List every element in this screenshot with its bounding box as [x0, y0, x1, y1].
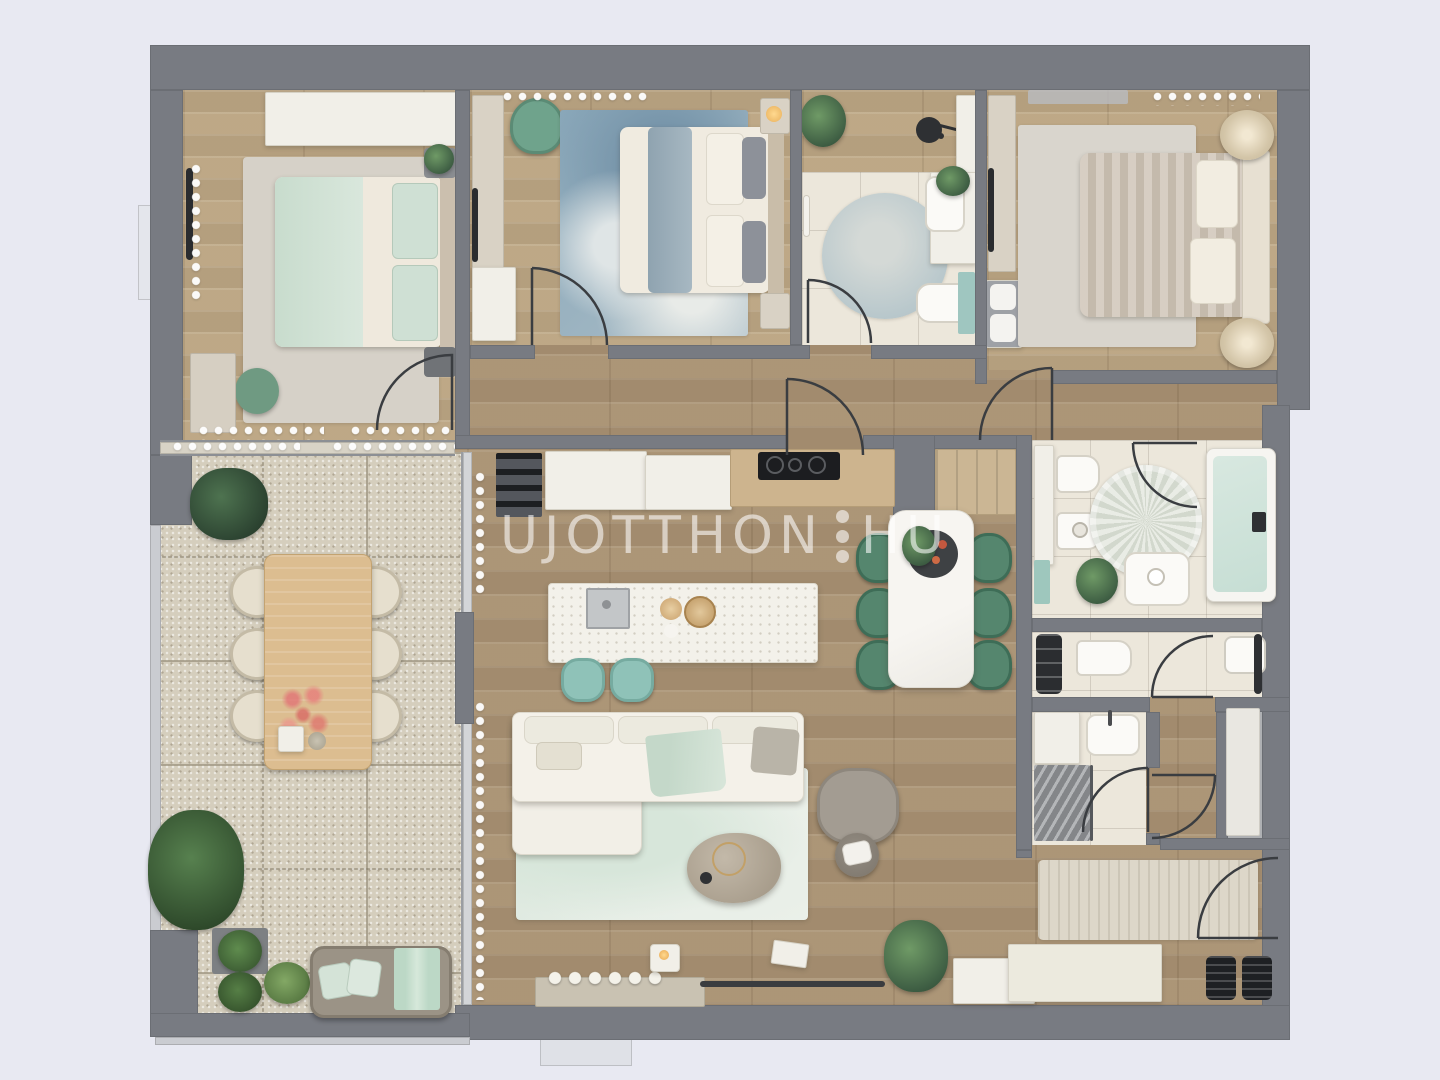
washbasin-2-drain — [1147, 568, 1165, 586]
side-table-star-bedroom-3-bottom — [1220, 318, 1274, 368]
cabinet-door-bedroom-3-a — [990, 284, 1016, 310]
nightstand-bedroom-1-bottom — [424, 347, 456, 377]
island-bowl-b — [684, 596, 716, 628]
terrace-vase — [278, 726, 304, 752]
daybed-pillow-b — [346, 958, 383, 998]
watermark-dot — [836, 510, 849, 523]
terrace-bowl — [308, 732, 326, 750]
watermark-text-main: UJOTTHON — [500, 506, 824, 566]
island-bowl-white — [664, 624, 678, 638]
entry-doormat-a — [1206, 956, 1236, 1000]
entry-doormat-b — [1242, 956, 1272, 1000]
bed-pillow-gray-bedroom-2-a — [742, 137, 766, 199]
console-decor-rocks — [545, 968, 665, 988]
curtain-terrace-top-b — [330, 440, 455, 455]
island-faucet — [602, 600, 611, 609]
wall-left-terrace-stub — [150, 455, 192, 525]
wardrobe-bedroom-1 — [265, 92, 457, 146]
tv-bedroom-2 — [472, 188, 478, 262]
plant-nightstand-bedroom-1 — [424, 144, 454, 174]
wall-hall-dining — [863, 435, 1032, 449]
wall-bathroom1-hall — [871, 345, 987, 359]
island-bowl-a — [660, 598, 682, 620]
sofa-pillow-chaise — [536, 742, 582, 770]
shower-glass — [1090, 765, 1093, 841]
bed-pillow-bedroom-3-a — [1196, 160, 1238, 228]
wall-bedroom2-hall-a — [470, 345, 535, 359]
watermark-dot — [836, 530, 849, 543]
toilet-bathroom-2 — [1056, 455, 1100, 493]
radiator-wc — [1254, 634, 1262, 694]
tv-bedroom-3 — [988, 168, 994, 252]
bar-stool-b — [610, 658, 654, 702]
sheer-bedroom-3-top — [1028, 90, 1128, 104]
cabinet-teal-bathroom-1 — [958, 272, 975, 334]
wall-right-upper — [1277, 90, 1310, 410]
watermark: UJOTTHON HU — [500, 506, 950, 566]
headboard-bedroom-1 — [440, 172, 456, 352]
curtain-bedroom-2-top — [500, 90, 650, 105]
curtain-terrace-top-a — [170, 440, 300, 455]
toilet-bathroom-1 — [916, 283, 964, 323]
coffee-table-tray — [712, 842, 746, 876]
curtain-bedroom-1-left — [188, 162, 205, 302]
terrace-pot-round-b — [264, 962, 310, 1004]
kitchen-counter-white — [545, 451, 647, 510]
terrace-planter-square-green — [218, 930, 262, 972]
towel-teal-bathroom-2 — [1034, 560, 1050, 604]
washbasin-shower-room — [1086, 714, 1140, 756]
wall-shower-right-a — [1146, 712, 1160, 768]
wall-kitchen-column — [893, 435, 935, 515]
plant-bathroom-1 — [800, 95, 846, 147]
daybed-throw-mint — [394, 948, 440, 1010]
terrace-pot-round-a — [218, 972, 262, 1012]
wall-bathroom2-bottom — [1032, 618, 1262, 632]
bar-stool-a — [561, 658, 605, 702]
sofa-back-cushion-a — [524, 716, 614, 744]
wall-wc-bottom-a — [1032, 697, 1150, 712]
curtain-bedroom-3-top — [1150, 90, 1260, 106]
shelf-black-wc — [1036, 634, 1062, 694]
counter-shower-room — [1034, 712, 1080, 764]
bed-blanket-mint-bedroom-1 — [275, 177, 363, 347]
lamp-glow-bedroom-2 — [766, 106, 782, 122]
wall-hall-kitchen — [455, 435, 787, 449]
wall-bedroom2-hall-b — [608, 345, 810, 359]
bathtub-faucet — [1252, 512, 1266, 532]
terrace-sill-bottom — [155, 1037, 470, 1045]
entry-runner-rug — [1038, 860, 1258, 940]
glass-living-terrace — [461, 452, 472, 1005]
sofa-blanket-gray — [750, 726, 800, 776]
wall-top — [150, 45, 1310, 90]
headboard-bedroom-3 — [1242, 150, 1270, 324]
curtain-living-left-b — [472, 700, 489, 1000]
bed-pillow-bedroom-3-b — [1190, 238, 1236, 304]
plant-living-console — [884, 920, 948, 992]
pouf-bedroom-1 — [235, 368, 279, 414]
bed-pillow-gray-bedroom-2-b — [742, 221, 766, 283]
cooktop-burner-1 — [766, 456, 784, 474]
bed-pillow-white-bedroom-2-a — [706, 133, 744, 205]
wall-innerhall-entry — [1160, 838, 1290, 850]
dresser-bedroom-1 — [190, 353, 236, 433]
wall-bedroom3-hall — [1052, 370, 1277, 384]
dresser-bedroom-2 — [472, 267, 516, 341]
toilet-wc — [1076, 640, 1132, 676]
plant-vanity-bathroom-1 — [936, 166, 970, 196]
bed-pillow-bedroom-1-a — [392, 183, 438, 259]
side-table-star-bedroom-3-top — [1220, 110, 1274, 160]
pendant-lamp-bathroom-1 — [916, 117, 942, 143]
curtain-bedroom-1-bottom-a — [196, 424, 324, 440]
nightstand-bedroom-2-bottom — [760, 293, 790, 329]
bed-pillow-white-bedroom-2-b — [706, 215, 744, 287]
wall-bathroom1-bedroom3 — [975, 90, 987, 384]
plant-terrace-large — [148, 810, 244, 930]
wall-shower-right-b — [1146, 833, 1160, 845]
washbasin-shower-faucet — [1108, 710, 1112, 726]
console-shelf-dark — [700, 981, 885, 987]
curtain-bedroom-1-bottom-b — [348, 424, 452, 440]
curtain-living-left-a — [472, 470, 489, 598]
closet-mat — [1226, 708, 1260, 836]
console-candle-flame — [659, 950, 669, 960]
towel-rail-bathroom-1 — [803, 195, 810, 237]
cooktop-burner-3 — [808, 456, 826, 474]
cabinet-door-bedroom-3-b — [990, 314, 1016, 342]
wall-living-rightblock — [1016, 435, 1032, 850]
entry-shoe-cabinet — [1008, 944, 1162, 1002]
watermark-dot — [836, 550, 849, 563]
wall-bedroom2-bathroom1 — [790, 90, 802, 345]
wall-left — [150, 90, 183, 455]
floor-plan: UJOTTHON HU — [0, 0, 1440, 1080]
kitchen-counter-white-2 — [645, 455, 732, 510]
counter-bathroom-2 — [1034, 445, 1054, 565]
wall-bottom — [455, 1005, 1290, 1040]
plant-bathroom-2 — [1076, 558, 1118, 604]
cooktop-burner-2 — [788, 458, 802, 472]
wall-entry-left-stub — [1016, 850, 1032, 858]
armchair-green-bedroom-2 — [510, 98, 564, 154]
watermark-text-tld: HU — [861, 506, 950, 566]
bidet-drain — [1072, 522, 1088, 538]
watermark-dots — [836, 510, 849, 563]
coffee-table-cup — [700, 872, 712, 884]
plant-terrace-top — [190, 468, 268, 540]
cabinet-tall-bathroom-1 — [956, 95, 977, 173]
sofa-throw-mint — [645, 728, 727, 798]
console-book — [771, 940, 810, 969]
headboard-bedroom-2 — [768, 122, 784, 298]
wall-bedroom1-bedroom2 — [455, 90, 470, 443]
shower-tray — [1034, 765, 1090, 841]
bed-pillow-bedroom-1-b — [392, 265, 438, 341]
bed-runner-bedroom-2 — [648, 127, 692, 293]
